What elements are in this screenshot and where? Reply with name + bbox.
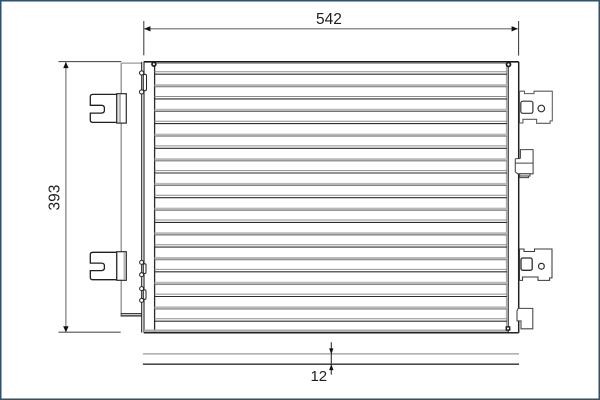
svg-text:12: 12: [310, 368, 327, 385]
svg-text:393: 393: [47, 185, 64, 211]
svg-text:542: 542: [316, 11, 342, 28]
